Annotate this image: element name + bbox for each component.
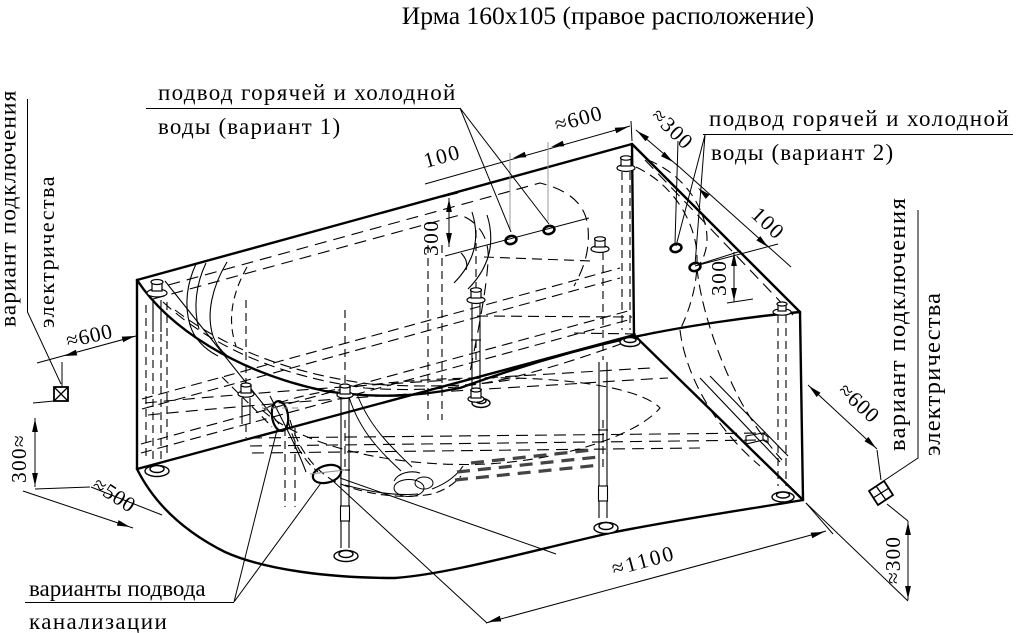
svg-text:300: 300: [419, 220, 443, 256]
svg-text:подвод горячей и холодной: подвод горячей и холодной: [709, 106, 1010, 131]
svg-text:Ирма 160х105 (правое расположе: Ирма 160х105 (правое расположение): [402, 1, 814, 30]
svg-text:300: 300: [707, 260, 731, 296]
svg-text:вариант подключения: вариант подключения: [884, 197, 911, 451]
svg-text:канализации: канализации: [29, 609, 168, 633]
svg-text:подвод горячей и холодной: подвод горячей и холодной: [158, 80, 457, 105]
svg-text:воды (вариант 1): воды (вариант 1): [158, 114, 341, 139]
svg-text:воды (вариант 2): воды (вариант 2): [711, 140, 894, 165]
svg-text:электричества: электричества: [919, 292, 946, 456]
svg-text:300≈: 300≈: [7, 434, 31, 483]
svg-text:вариант подключения: вариант подключения: [0, 90, 22, 327]
svg-text:≈300: ≈300: [881, 536, 905, 584]
svg-text:варианты подвода: варианты подвода: [29, 576, 206, 601]
svg-text:электричества: электричества: [34, 175, 59, 328]
